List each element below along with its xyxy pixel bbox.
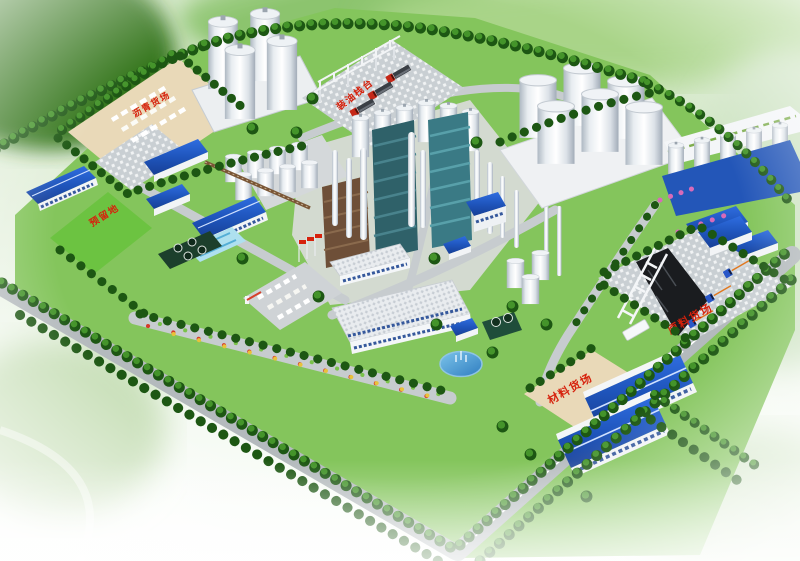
rendering-canvas: 沥青货场 装油栈台 bbox=[0, 0, 800, 561]
industrial-plant-aerial-rendering: 沥青货场 装油栈台 bbox=[0, 0, 800, 561]
fog-overlay bbox=[0, 0, 800, 561]
